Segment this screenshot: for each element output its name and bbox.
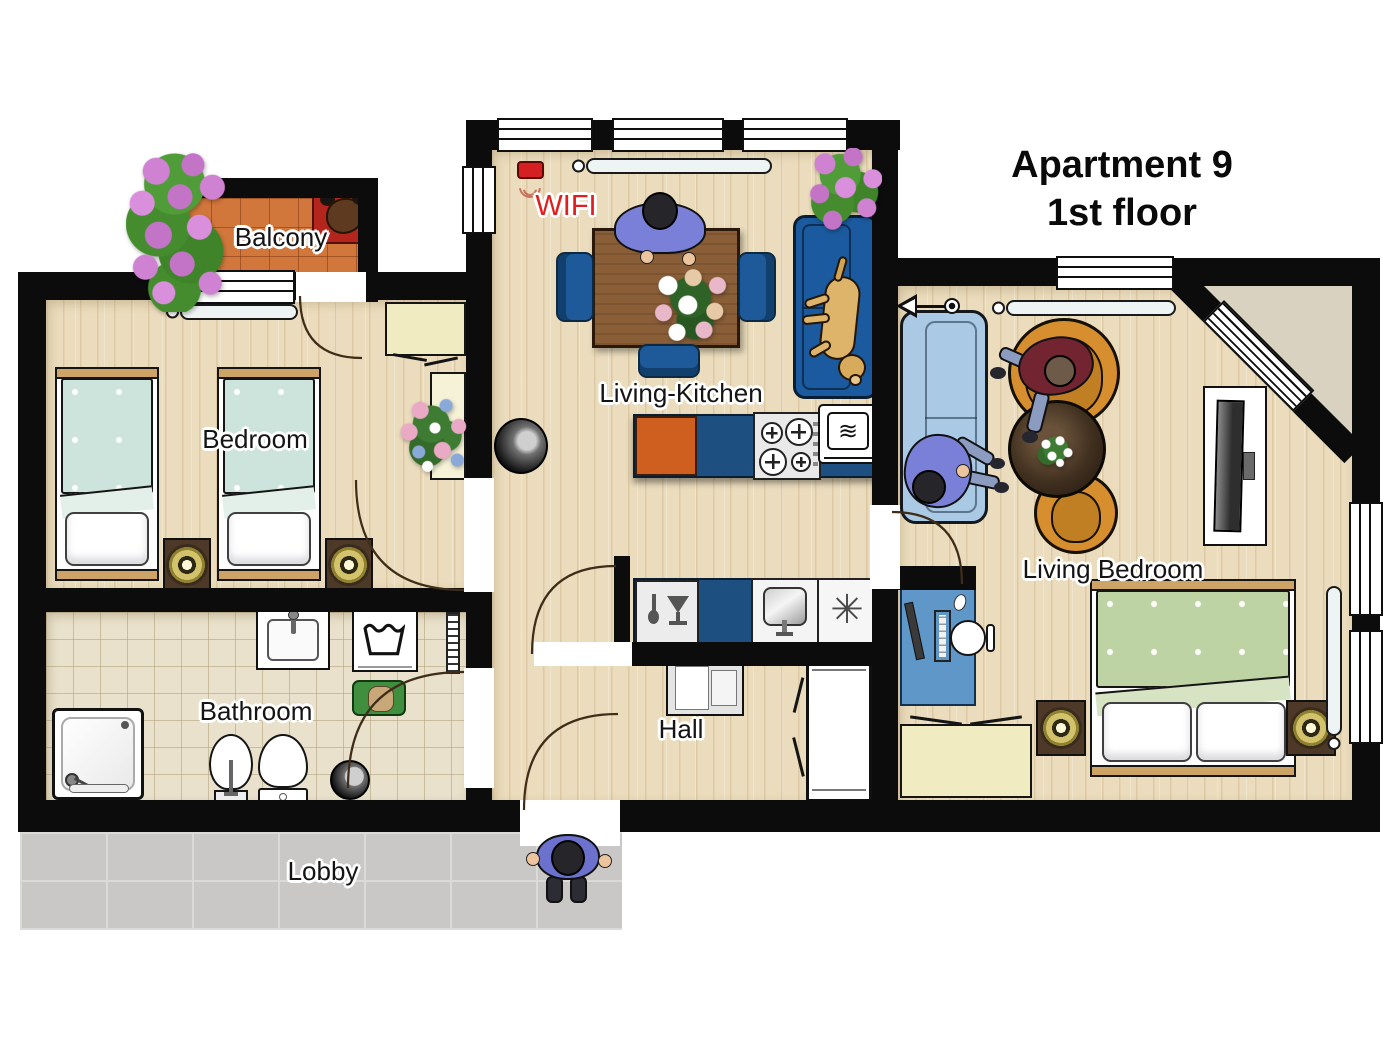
double-bed [1090,580,1296,776]
nightstand-lamp [325,538,373,592]
kitchen-side-window [462,166,496,234]
balcony-flower-bush [126,152,234,312]
person-leg [1025,390,1051,435]
table-flower-bouquet [650,266,740,344]
kitchen-pouf [494,418,548,474]
laundry-cloth [368,686,394,712]
toilet [258,734,310,806]
bed-pillow [1196,702,1286,762]
person-hand [956,464,970,478]
laundry-basket [352,680,406,716]
pc-tower [934,610,951,662]
person-on-sofa [898,408,1008,528]
wardrobe-shelf-line [812,669,866,671]
person-leg [570,876,587,903]
wall-bedroom-bathroom-divider [18,588,466,612]
wall-kitchen-hall [630,642,872,666]
stove-burner [791,452,811,472]
kitchen-sink [751,578,819,644]
lamp-shade-inner [902,299,915,313]
living-bedroom-top-window [1056,256,1174,290]
tv-board [1203,386,1267,546]
tv-stand [1243,452,1255,480]
wall-left-outer [18,272,46,832]
kitchen-window-1 [497,118,593,152]
floor-plan: ≋ ✳ [0,0,1400,1050]
balcony-door-opening [296,272,366,302]
glass-icon-base [669,621,687,625]
chair-seat [950,620,986,656]
kitchen-window-2 [612,118,724,152]
bidet [208,734,254,806]
right-wall-window-1 [1349,502,1383,616]
mouse [952,593,969,613]
kitchen-flower-bush [806,148,882,236]
bedroom-door-opening [464,478,494,592]
spoon-icon-bowl [648,610,659,624]
dining-chair-left [556,252,594,322]
bathroom-sink [256,610,330,670]
person-hand [526,852,540,866]
person-in-armchair [1002,325,1126,447]
hall-console-table [666,658,744,716]
wardrobe-shelf-line [812,789,866,791]
tv-screen [1213,400,1244,533]
bidet-faucet [229,760,233,794]
single-bed-1 [55,368,159,580]
stove-burner [785,418,813,446]
microwave-base [824,457,872,460]
console-item [711,670,737,706]
microwave: ≋ [818,404,878,464]
person-hand [598,854,612,868]
person-shoe [990,367,1006,379]
floor-lamp [896,290,966,326]
person-shoe [994,482,1009,493]
bed-pillow [227,512,311,566]
bed-pillow [65,512,149,566]
hall-wardrobe [806,658,872,802]
living-bedroom-radiator-right [1326,586,1342,736]
office-chair [950,616,1002,660]
cabinet-orange [635,416,697,476]
person-head [1044,355,1076,387]
bathroom-stool [330,760,370,800]
person-at-table [608,192,718,270]
person-shoe [1022,431,1038,443]
shower-threshold [69,784,129,793]
wall-bottom [18,800,1380,832]
stove [753,412,821,480]
nightstand-lamp [1036,700,1086,756]
bathroom-label: Bathroom [200,696,313,727]
bed-cover [1096,590,1290,688]
living-kitchen-label: Living-Kitchen [599,378,762,409]
microwave-window: ≋ [827,412,869,450]
lobby-label: Lobby [288,856,359,887]
laundry-icon [363,622,405,658]
chest [900,724,1032,798]
lamp-arm [916,305,946,308]
living-bedroom-label: Living Bedroom [1023,554,1204,585]
person-head [642,192,678,230]
person-hand [682,252,696,266]
wifi-router [517,161,544,179]
monitor [904,602,925,661]
lamp-bulb [944,298,960,314]
toilet-bowl [258,734,308,788]
living-bedroom-radiator-top [1006,300,1176,316]
chair-back [986,624,995,652]
person-head [912,470,946,504]
kitchen-hall-door-opening [534,642,632,666]
flower-bouquet [398,396,472,476]
plan-title-line2: 1st floor [1047,192,1197,235]
person-hand [640,250,654,264]
plan-title-line1: Apartment 9 [1011,144,1233,187]
stove-burner [759,448,787,476]
hall-label: Hall [659,714,704,745]
shower [52,708,144,800]
bedroom-label: Bedroom [202,424,308,455]
wall-living-bedroom-stub [898,566,976,590]
bed-pillow [1102,702,1192,762]
person-leg [546,876,563,903]
freezer: ✳ [817,578,877,644]
stove-burner [761,422,783,444]
kitchen-radiator [586,158,772,174]
washer-base-line [358,666,412,668]
glass-icon [667,596,689,613]
dishwasher [635,580,699,644]
single-bed-2 [217,368,321,580]
nightstand-lamp [163,538,211,592]
console-item [675,666,709,710]
dining-chair-bottom [638,344,700,378]
washing-machine [352,608,418,672]
dog-snout [849,374,862,386]
bathroom-radiator [446,612,460,674]
person-head [551,840,585,876]
dining-chair-right [738,252,776,322]
sink-faucet-bar [776,632,793,636]
shower-drain [121,721,129,729]
person-shoe [990,458,1005,469]
balcony-label: Balcony [235,222,328,253]
wifi-label: WIFI [535,190,596,223]
bathroom-door-opening [464,668,494,788]
bed-cover [61,378,153,494]
lobby-person [524,830,614,914]
kitchen-window-3 [742,118,848,152]
living-bedroom-door-opening [870,505,900,589]
bidet-faucet-bar [224,792,238,796]
freezer-icon: ✳ [819,590,875,630]
glass-icon-stem [676,612,680,621]
bedroom-wardrobe [385,302,466,356]
right-wall-window-2 [1349,630,1383,744]
